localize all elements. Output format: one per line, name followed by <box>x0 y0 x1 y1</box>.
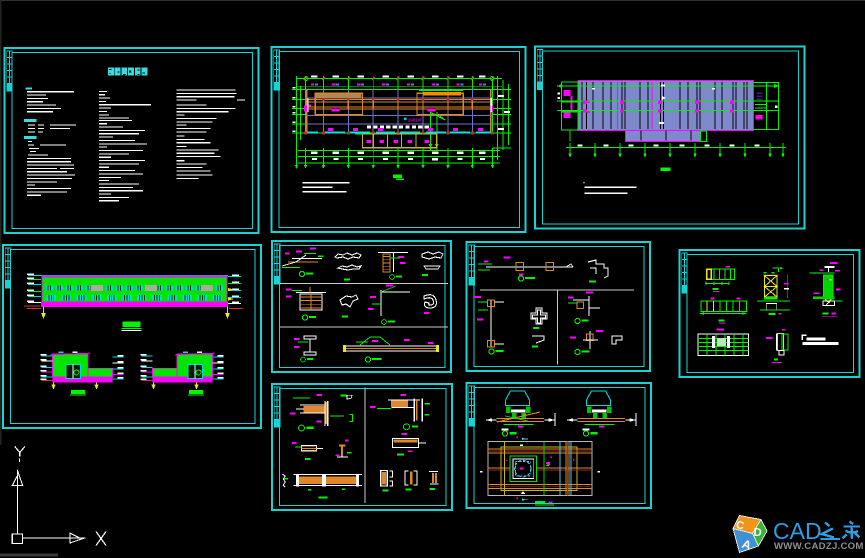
svg-text:d4814f: d4814f <box>408 118 422 123</box>
svg-text:D: D <box>753 527 762 540</box>
svg-text:WWW.CADZJ.COM: WWW.CADZJ.COM <box>774 541 864 552</box>
